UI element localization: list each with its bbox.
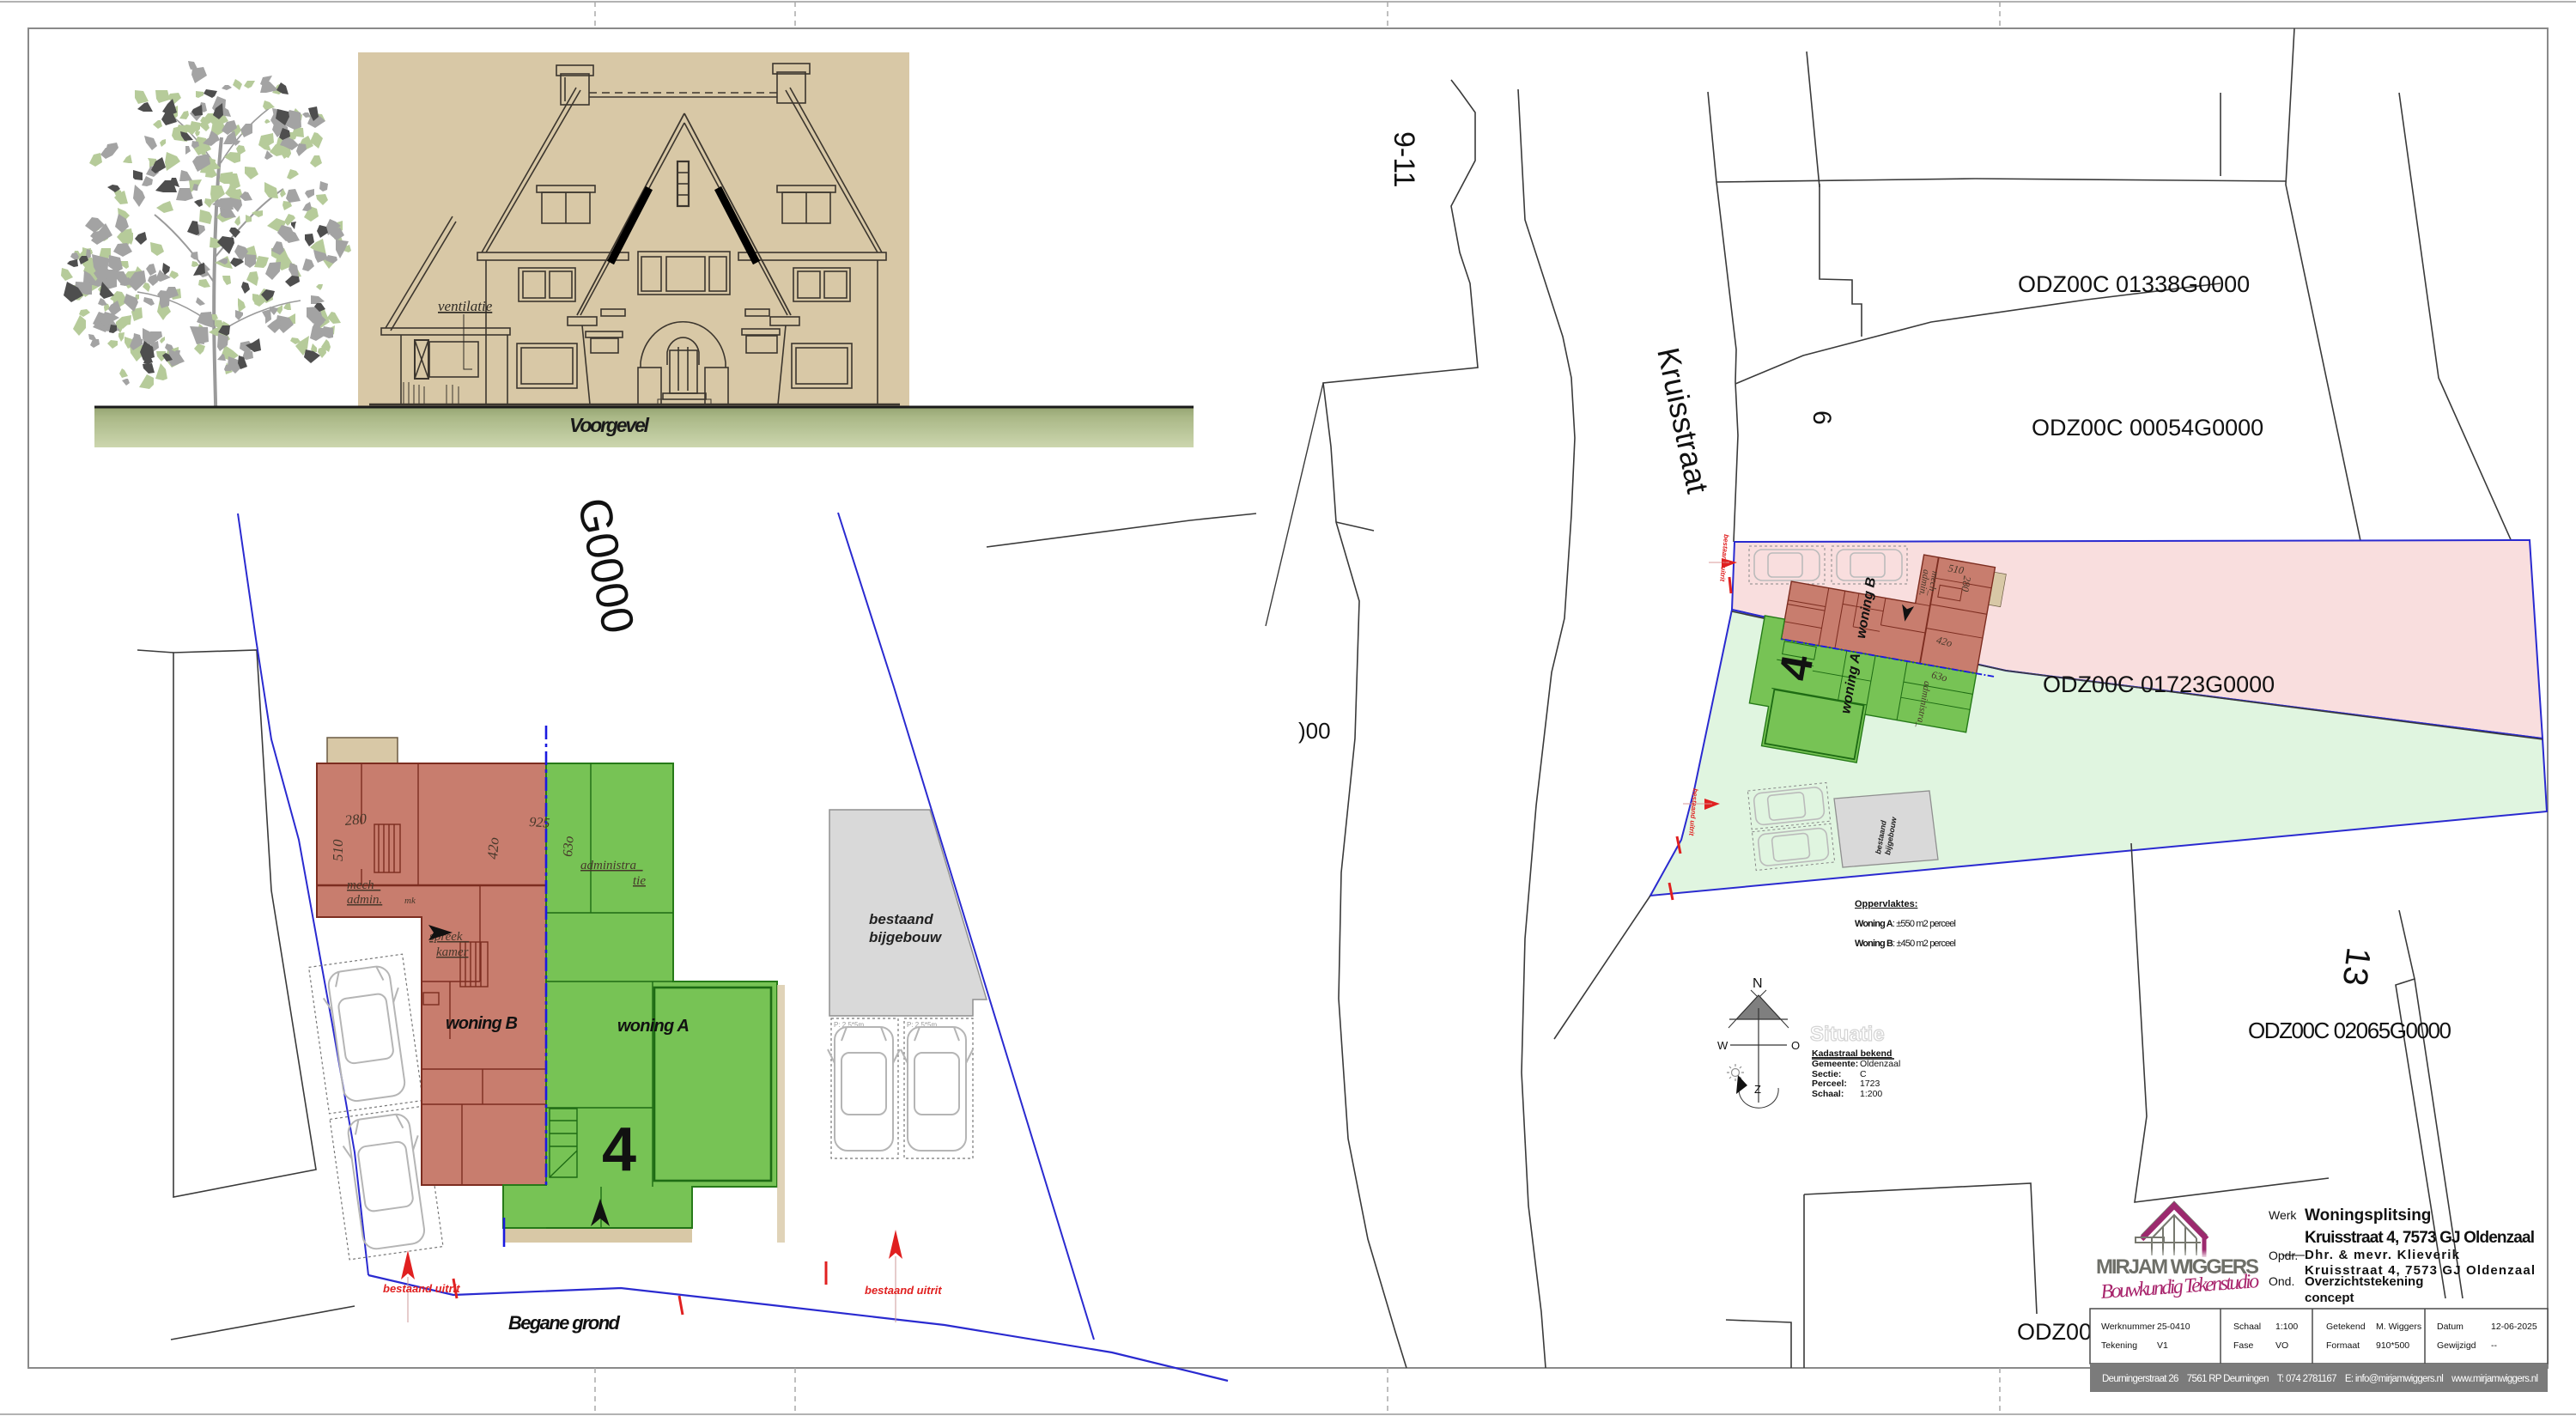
svg-text:Overzichtstekening: Overzichtstekening	[2305, 1274, 2423, 1289]
svg-text:Gemeente:: Gemeente:	[1812, 1059, 1858, 1069]
svg-text:bestaand uitrit: bestaand uitrit	[383, 1282, 460, 1295]
svg-text:4: 4	[602, 1115, 636, 1184]
svg-text:bijgebouw: bijgebouw	[869, 929, 943, 945]
svg-text:63o: 63o	[561, 836, 577, 857]
svg-text:Kadastraal bekend: Kadastraal bekend	[1812, 1048, 1892, 1059]
svg-text:Oldenzaal: Oldenzaal	[1860, 1059, 1900, 1069]
svg-text:925: 925	[529, 815, 550, 831]
svg-text:25-0410: 25-0410	[2157, 1322, 2190, 1332]
svg-text:Woning B: ±450 m2 perceel: Woning B: ±450 m2 perceel	[1855, 939, 1956, 949]
svg-text:Dhr. & mevr. Klieverik: Dhr. & mevr. Klieverik	[2305, 1248, 2460, 1262]
svg-text:administra_: administra_	[580, 859, 643, 872]
svg-text:concept: concept	[2305, 1291, 2354, 1305]
svg-text:Schaal:: Schaal:	[1812, 1089, 1844, 1099]
svg-text:V1: V1	[2157, 1340, 2168, 1351]
svg-text:Tekening: Tekening	[2101, 1340, 2137, 1351]
svg-text:9-11: 9-11	[1388, 131, 1420, 188]
svg-text:mk: mk	[404, 896, 416, 906]
svg-text:280: 280	[344, 811, 368, 829]
svg-text:Perceel:: Perceel:	[1812, 1079, 1847, 1089]
svg-text:ventilatie: ventilatie	[438, 298, 493, 314]
svg-text:bestaand: bestaand	[869, 911, 933, 927]
svg-text:Oppervlaktes:: Oppervlaktes:	[1855, 899, 1917, 909]
svg-text:Getekend: Getekend	[2326, 1322, 2366, 1332]
svg-text:12-06-2025: 12-06-2025	[2491, 1322, 2537, 1332]
svg-text:Werknummer: Werknummer	[2101, 1322, 2155, 1332]
svg-text:woning B: woning B	[446, 1014, 518, 1033]
svg-text:admin.: admin.	[347, 893, 382, 907]
svg-text:Deurningerstraat 26 7561 RP: Deurningerstraat 26 7561 RP Deurningen T…	[2102, 1374, 2538, 1384]
svg-text:13: 13	[2336, 945, 2378, 988]
svg-text:6: 6	[1807, 410, 1836, 425]
svg-text:O: O	[1791, 1039, 1800, 1052]
svg-text:Kruisstraat: Kruisstraat	[1650, 344, 1716, 496]
svg-text:ODZ00C 00054G0000: ODZ00C 00054G0000	[2032, 415, 2263, 441]
svg-text:Ond.: Ond.	[2269, 1274, 2294, 1288]
svg-text:--: --	[2491, 1340, 2497, 1351]
svg-text:W: W	[1717, 1039, 1728, 1052]
svg-text:Woningsplitsing: Woningsplitsing	[2305, 1206, 2431, 1225]
svg-text:Datum: Datum	[2437, 1322, 2464, 1332]
svg-text:ODZ00C 02065G0000: ODZ00C 02065G0000	[2248, 1018, 2451, 1043]
svg-text:Situatie: Situatie	[1810, 1023, 1885, 1046]
svg-text:N: N	[1753, 976, 1763, 991]
svg-text:Woning A: ±550 m2 perceel: Woning A: ±550 m2 perceel	[1855, 919, 1956, 929]
svg-text:ODZ00C 01338G0000: ODZ00C 01338G0000	[2018, 271, 2250, 297]
svg-text:Kruisstraat 4, 7573 GJ Oldenza: Kruisstraat 4, 7573 GJ Oldenzaal	[2305, 1229, 2535, 1247]
svg-text:mech_: mech_	[347, 878, 381, 892]
svg-text:VO: VO	[2275, 1340, 2288, 1351]
svg-text:42o: 42o	[484, 837, 502, 860]
svg-text:510: 510	[330, 839, 346, 861]
svg-text:Gewijzigd: Gewijzigd	[2437, 1340, 2476, 1351]
svg-text:Werk: Werk	[2269, 1208, 2297, 1222]
svg-text:)00: )00	[1298, 718, 1331, 744]
svg-text:bestaand uitrit: bestaand uitrit	[1718, 534, 1730, 582]
svg-text:1:200: 1:200	[1860, 1089, 1882, 1099]
svg-text:Voorgevel: Voorgevel	[569, 414, 650, 436]
svg-text:tie: tie	[633, 874, 646, 888]
svg-text:Formaat: Formaat	[2326, 1340, 2360, 1351]
svg-text:kamer: kamer	[436, 945, 469, 959]
svg-text:910*500: 910*500	[2376, 1340, 2409, 1351]
svg-text:M. Wiggers: M. Wiggers	[2376, 1322, 2421, 1332]
svg-text:G0000: G0000	[568, 494, 643, 637]
svg-text:Begane grond: Begane grond	[508, 1312, 621, 1334]
svg-text:1723: 1723	[1860, 1079, 1880, 1089]
svg-text:1:100: 1:100	[2275, 1322, 2298, 1332]
svg-text:woning A: woning A	[617, 1017, 690, 1036]
svg-text:Fase: Fase	[2233, 1340, 2254, 1351]
svg-text:bestaand uitrit: bestaand uitrit	[865, 1284, 942, 1297]
svg-text:ODZ00C 01723G0000: ODZ00C 01723G0000	[2043, 672, 2275, 697]
svg-text:Z: Z	[1754, 1083, 1761, 1096]
svg-text:Schaal: Schaal	[2233, 1322, 2261, 1332]
